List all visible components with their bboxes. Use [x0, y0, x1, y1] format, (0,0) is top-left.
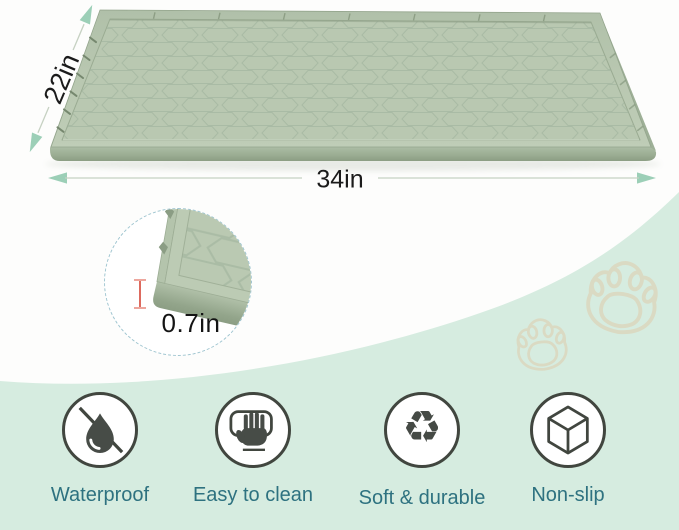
feature-label: Waterproof — [51, 484, 149, 507]
feature-label: Soft & durable — [359, 487, 486, 510]
recycle-icon: ♻ — [384, 392, 460, 468]
hand-wipe-icon — [215, 392, 291, 468]
feature-item-soft-durable: ♻ Soft & durable — [342, 392, 502, 510]
cube-icon — [530, 392, 606, 468]
product-dimension-infographic: 22in 34in — [0, 0, 679, 530]
thickness-dimension-label: 0.7in — [117, 308, 252, 339]
width-dimension-arrow: 34in — [48, 166, 656, 194]
feature-item-non-slip: Non-slip — [488, 392, 648, 507]
width-dimension-label: 34in — [316, 166, 363, 194]
recycle-glyph: ♻ — [402, 406, 441, 450]
feature-label: Non-slip — [531, 484, 604, 507]
feature-label: Easy to clean — [193, 484, 313, 507]
feature-item-waterproof: Waterproof — [20, 392, 180, 507]
no-water-drop-icon — [62, 392, 138, 468]
product-mat — [50, 10, 656, 161]
feature-item-easy-to-clean: Easy to clean — [173, 392, 333, 507]
thickness-callout: 0.7in — [104, 208, 252, 356]
measure-bracket-icon — [134, 280, 146, 308]
